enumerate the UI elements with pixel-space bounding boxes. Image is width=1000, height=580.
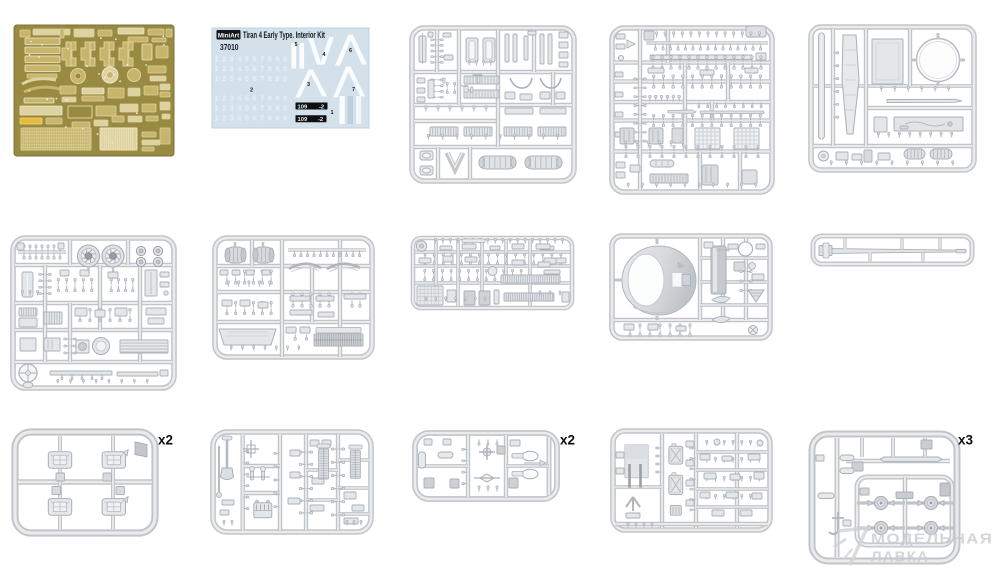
svg-text:1 2 3 4 5 6 7 8 9 0: 1 2 3 4 5 6 7 8 9 0 <box>215 114 288 123</box>
svg-text:2: 2 <box>250 88 253 94</box>
svg-text:1 2 3 4 5 6 7 8 9 0: 1 2 3 4 5 6 7 8 9 0 <box>215 64 288 73</box>
svg-text:1 2 3 4 5 6 7 8 9 0: 1 2 3 4 5 6 7 8 9 0 <box>215 55 288 64</box>
svg-text:37010: 37010 <box>220 42 239 52</box>
svg-text:x3: x3 <box>958 433 974 448</box>
svg-text:1: 1 <box>331 110 334 116</box>
svg-text:x2: x2 <box>158 433 173 448</box>
svg-text:ЛАВКА: ЛАВКА <box>871 550 929 566</box>
svg-text:1 2 3 4 5 6 7 8 9 0: 1 2 3 4 5 6 7 8 9 0 <box>215 74 288 83</box>
svg-text:-2: -2 <box>319 104 324 110</box>
svg-text:MiniArt: MiniArt <box>218 33 239 40</box>
svg-text:6: 6 <box>349 48 352 54</box>
svg-text:МОДЕЛЬНАЯ: МОДЕЛЬНАЯ <box>871 532 993 548</box>
svg-text:x2: x2 <box>560 433 575 448</box>
svg-text:1 2 3 4 5 6 7 8 9 0: 1 2 3 4 5 6 7 8 9 0 <box>215 93 288 102</box>
svg-text:7: 7 <box>352 87 355 93</box>
svg-text:1 2 3 4 5 6 7 8 9 0: 1 2 3 4 5 6 7 8 9 0 <box>215 104 288 113</box>
svg-text:109: 109 <box>298 117 308 123</box>
svg-text:3: 3 <box>307 82 310 88</box>
svg-text:5: 5 <box>295 42 298 48</box>
svg-text:109: 109 <box>298 104 308 110</box>
svg-text:-2: -2 <box>318 117 323 123</box>
